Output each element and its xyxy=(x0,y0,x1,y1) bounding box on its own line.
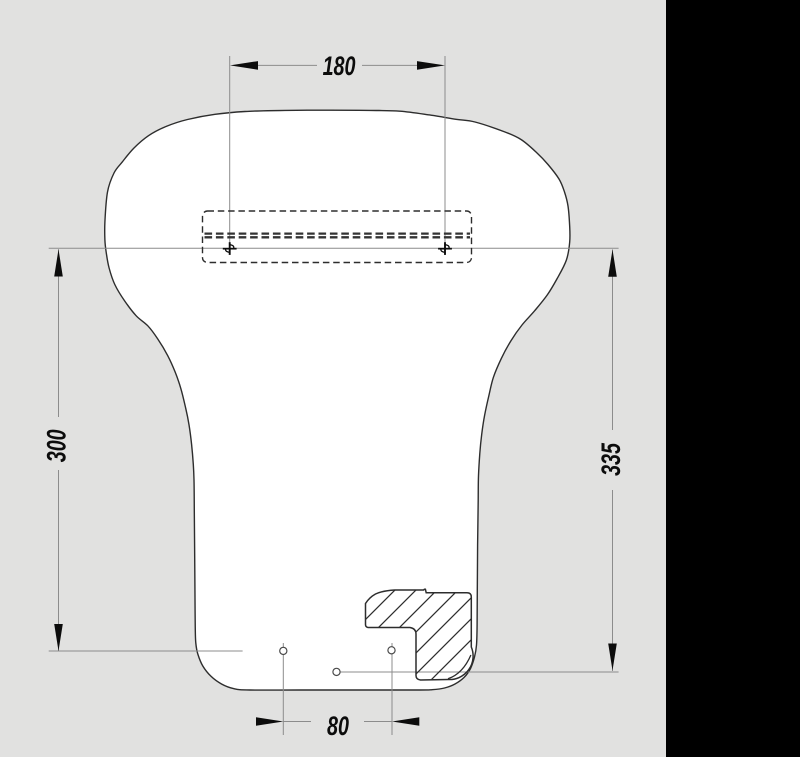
svg-text:300: 300 xyxy=(43,429,73,462)
svg-text:335: 335 xyxy=(597,442,627,476)
svg-text:80: 80 xyxy=(327,712,349,742)
svg-text:180: 180 xyxy=(323,52,356,82)
